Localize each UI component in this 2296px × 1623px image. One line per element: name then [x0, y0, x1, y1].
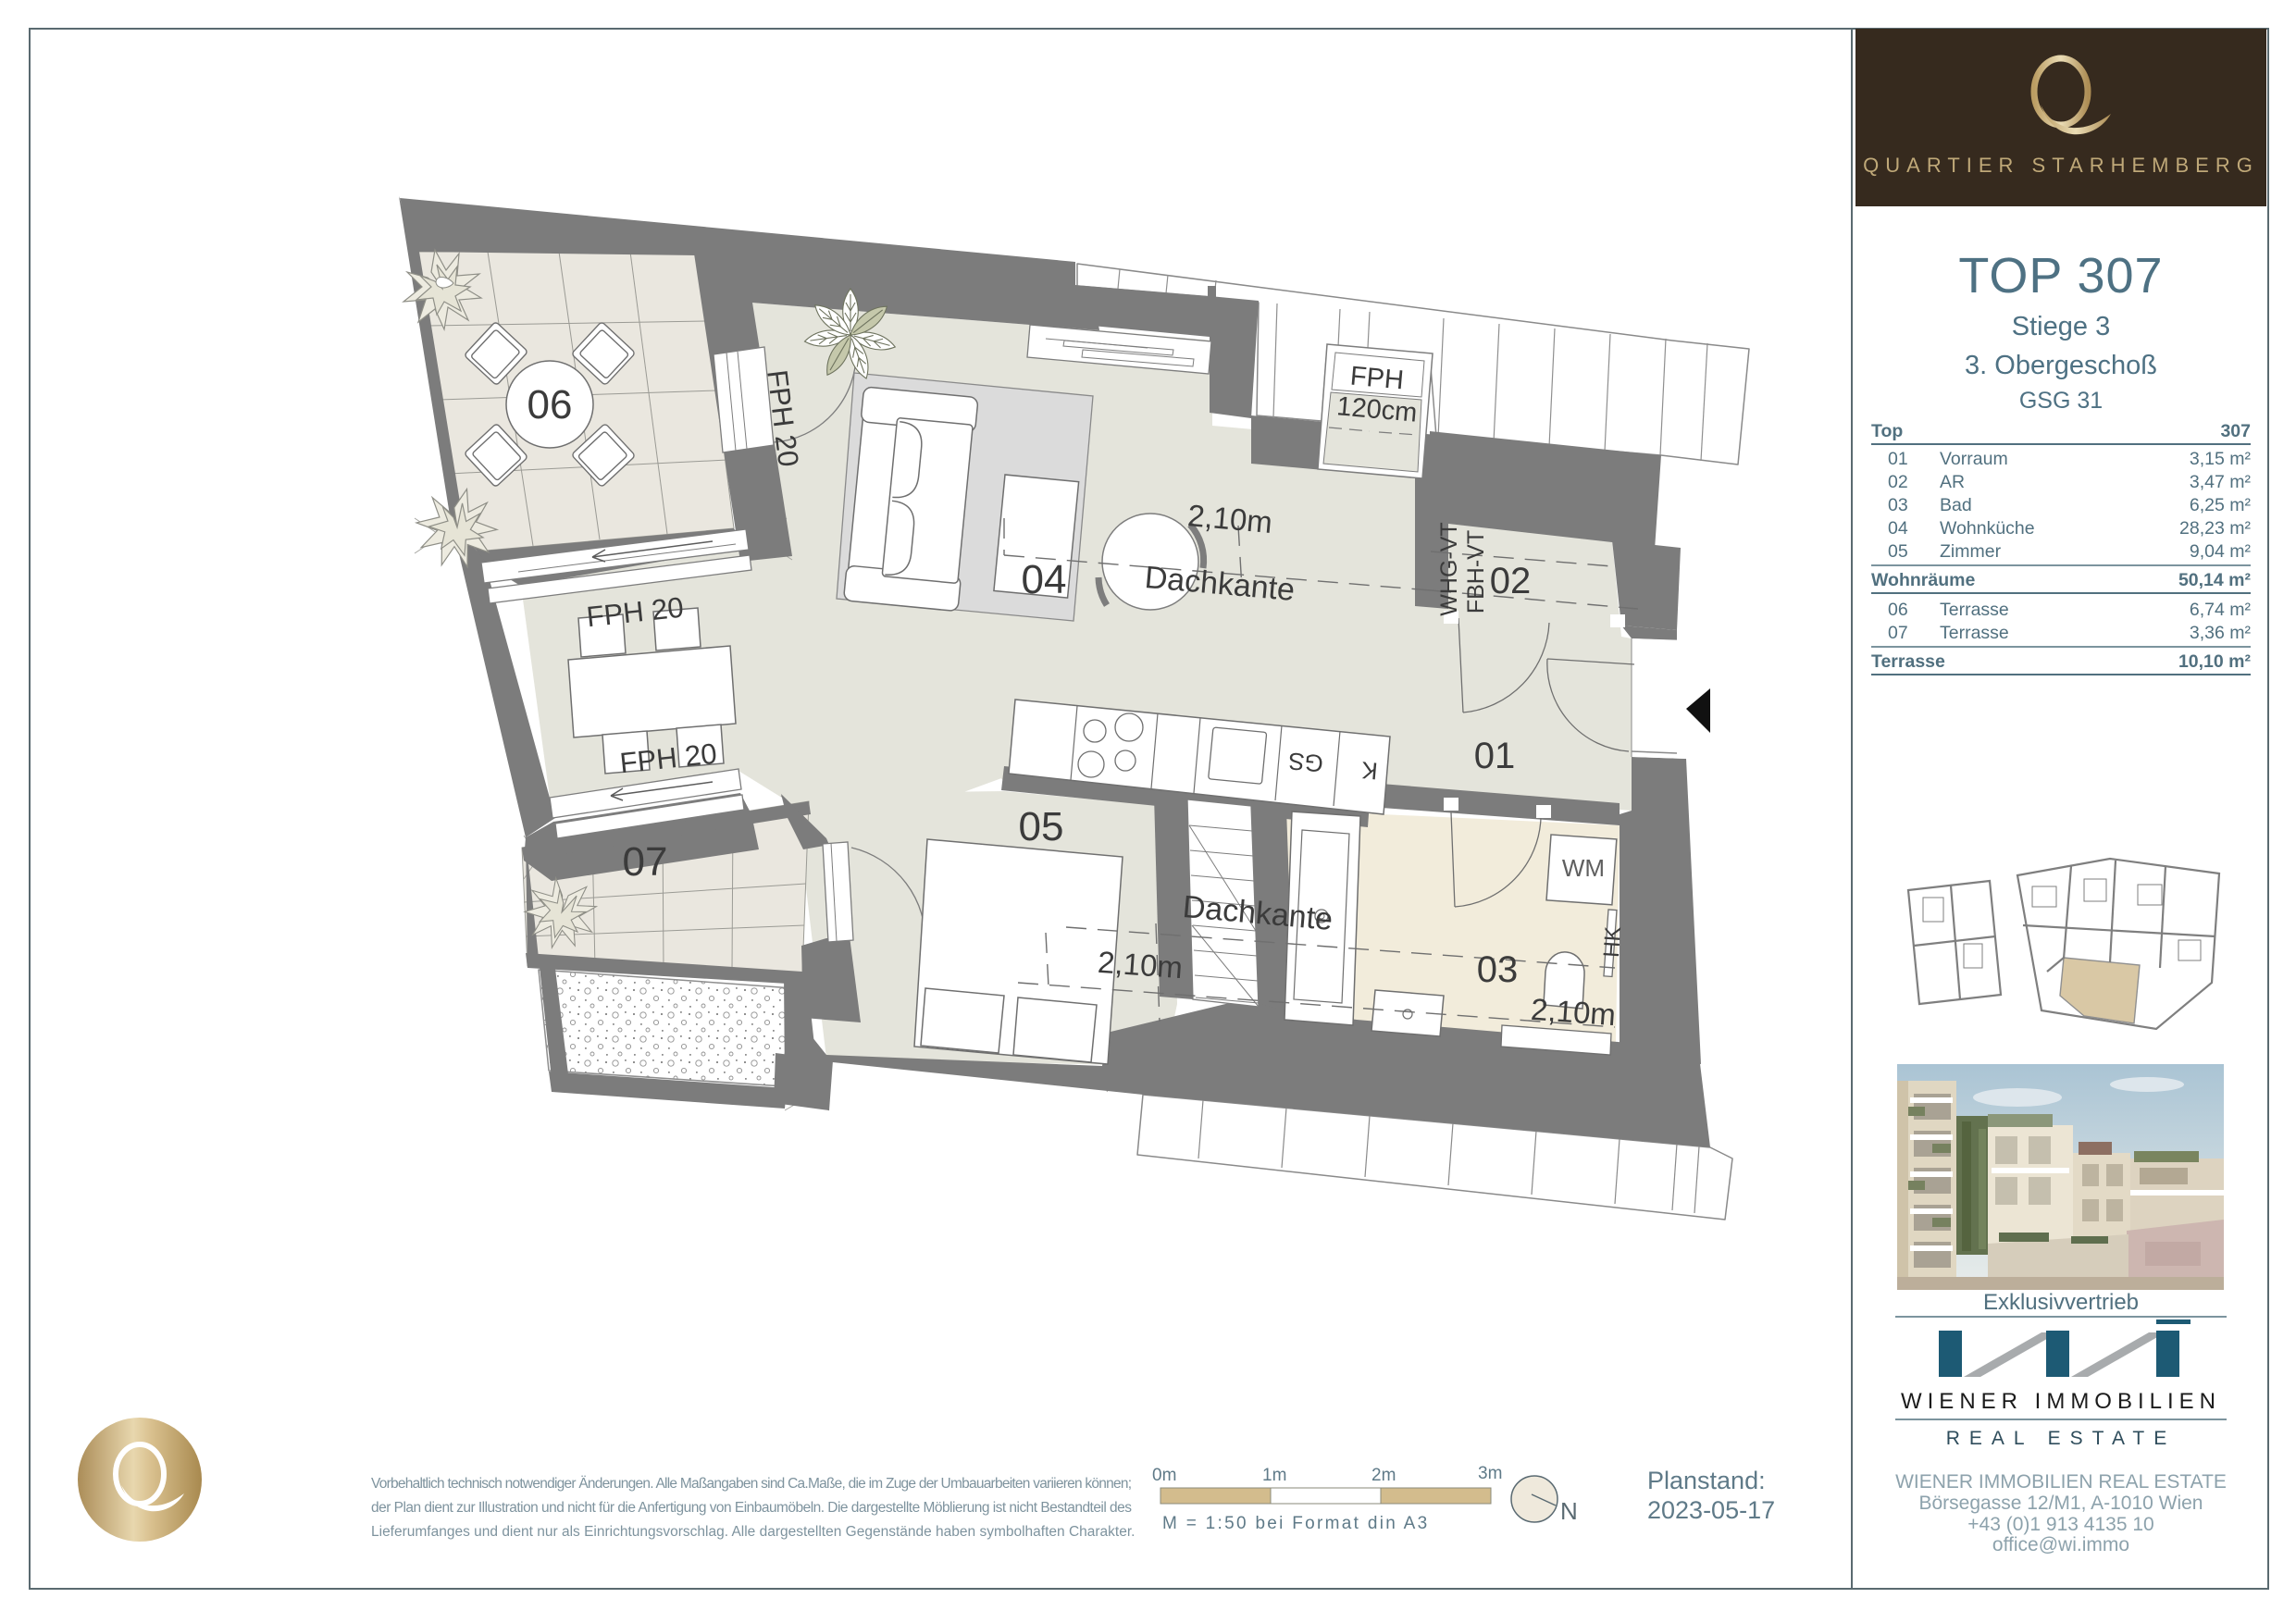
svg-text:3,36 m²: 3,36 m² [2190, 623, 2252, 643]
svg-text:07: 07 [1888, 623, 1908, 643]
svg-text:07: 07 [623, 839, 668, 885]
svg-text:GS: GS [1287, 747, 1324, 777]
svg-text:FPH: FPH [1349, 362, 1406, 396]
svg-text:GSG 31: GSG 31 [2019, 388, 2103, 414]
svg-text:Vorraum: Vorraum [1940, 449, 2008, 469]
svg-text:Planstand:: Planstand: [1647, 1467, 1766, 1494]
svg-text:REAL ESTATE: REAL ESTATE [1946, 1428, 2176, 1449]
svg-text:WIENER IMMOBILIEN REAL ESTATE: WIENER IMMOBILIEN REAL ESTATE [1895, 1471, 2227, 1493]
svg-text:Vorbehaltlich technisch notwen: Vorbehaltlich technisch notwendiger Ände… [371, 1476, 1132, 1492]
svg-text:N: N [1560, 1497, 1578, 1525]
svg-text:Wohnküche: Wohnküche [1940, 518, 2035, 539]
svg-text:+43 (0)1 913 4135 10: +43 (0)1 913 4135 10 [1967, 1514, 2153, 1535]
svg-text:06: 06 [527, 382, 573, 427]
svg-text:Terrasse: Terrasse [1940, 623, 2009, 643]
svg-text:05: 05 [1019, 804, 1064, 849]
svg-text:01: 01 [1888, 449, 1908, 469]
svg-text:FBH-VT: FBH-VT [1463, 530, 1489, 613]
svg-text:3m: 3m [1478, 1464, 1502, 1483]
svg-text:WIENER IMMOBILIEN: WIENER IMMOBILIEN [1901, 1389, 2221, 1414]
svg-text:K: K [1359, 756, 1379, 785]
svg-text:3,47 m²: 3,47 m² [2190, 472, 2252, 492]
svg-text:6,25 m²: 6,25 m² [2190, 495, 2252, 515]
svg-text:M = 1:50 bei Format din A3: M = 1:50 bei Format din A3 [1162, 1514, 1429, 1533]
svg-text:50,14 m²: 50,14 m² [2178, 570, 2252, 590]
svg-text:Zimmer: Zimmer [1940, 541, 2002, 562]
svg-text:05: 05 [1888, 541, 1908, 562]
svg-text:Bad: Bad [1940, 495, 1972, 515]
svg-text:2,10m: 2,10m [1530, 992, 1617, 1032]
svg-text:QUARTIER STARHEMBERG: QUARTIER STARHEMBERG [1863, 154, 2259, 177]
svg-text:HK: HK [1599, 925, 1626, 958]
svg-text:06: 06 [1888, 600, 1908, 620]
svg-text:WHG-VT: WHG-VT [1436, 522, 1462, 615]
svg-text:04: 04 [1022, 557, 1067, 602]
svg-text:3,15 m²: 3,15 m² [2190, 449, 2252, 469]
svg-text:Exklusivvertrieb: Exklusivvertrieb [1983, 1290, 2139, 1315]
svg-text:6,74 m²: 6,74 m² [2190, 600, 2252, 620]
svg-text:10,10 m²: 10,10 m² [2178, 651, 2252, 672]
svg-text:TOP 307: TOP 307 [1958, 248, 2163, 304]
svg-text:03: 03 [1888, 495, 1908, 515]
svg-text:9,04 m²: 9,04 m² [2190, 541, 2252, 562]
svg-text:Top: Top [1871, 421, 1903, 441]
svg-text:Stiege 3: Stiege 3 [2012, 312, 2110, 341]
svg-text:1m: 1m [1262, 1466, 1286, 1485]
svg-text:Terrasse: Terrasse [1871, 651, 1945, 672]
svg-text:04: 04 [1888, 518, 1908, 539]
svg-text:Lieferumfanges und dient nur a: Lieferumfanges und dient nur als Einrich… [371, 1524, 1135, 1540]
svg-text:0m: 0m [1152, 1466, 1176, 1485]
svg-text:2,10m: 2,10m [1097, 945, 1184, 985]
svg-text:Wohnräume: Wohnräume [1871, 570, 1975, 590]
svg-text:28,23 m²: 28,23 m² [2179, 518, 2251, 539]
svg-text:Börsegasse 12/M1, A-1010 Wien: Börsegasse 12/M1, A-1010 Wien [1918, 1493, 2203, 1514]
svg-text:WM: WM [1562, 854, 1605, 882]
svg-text:01: 01 [1474, 736, 1516, 776]
svg-text:307: 307 [2220, 421, 2251, 441]
svg-text:der Plan dient zur Illustratio: der Plan dient zur Illustration und nich… [371, 1500, 1132, 1516]
svg-text:03: 03 [1477, 949, 1519, 990]
svg-text:02: 02 [1490, 561, 1532, 601]
svg-text:Terrasse: Terrasse [1940, 600, 2009, 620]
svg-text:2023-05-17: 2023-05-17 [1647, 1496, 1775, 1524]
svg-text:02: 02 [1888, 472, 1908, 492]
svg-text:AR: AR [1940, 472, 1965, 492]
svg-text:2m: 2m [1371, 1466, 1396, 1485]
svg-text:3. Obergeschoß: 3. Obergeschoß [1965, 351, 2157, 380]
svg-text:office@wi.immo: office@wi.immo [1992, 1534, 2129, 1555]
